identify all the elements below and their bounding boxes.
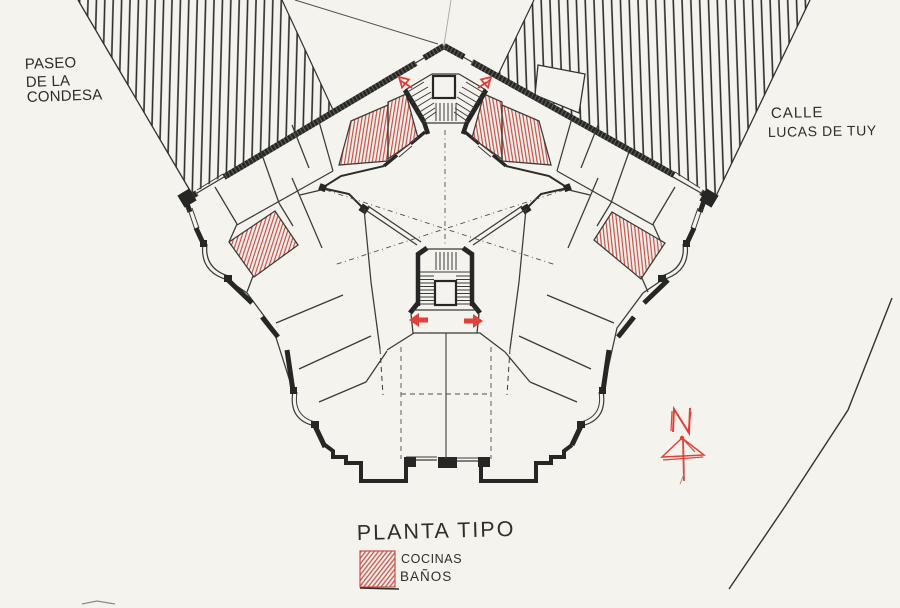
svg-text:LUCAS DE TUY: LUCAS DE TUY xyxy=(768,122,877,140)
svg-text:BAÑOS: BAÑOS xyxy=(400,569,452,584)
svg-text:PASEO: PASEO xyxy=(25,54,77,73)
svg-text:PLANTA TIPO: PLANTA TIPO xyxy=(357,517,516,545)
svg-text:CALLE: CALLE xyxy=(771,104,824,122)
svg-text:CONDESA: CONDESA xyxy=(27,86,103,106)
svg-text:COCINAS: COCINAS xyxy=(401,552,462,566)
